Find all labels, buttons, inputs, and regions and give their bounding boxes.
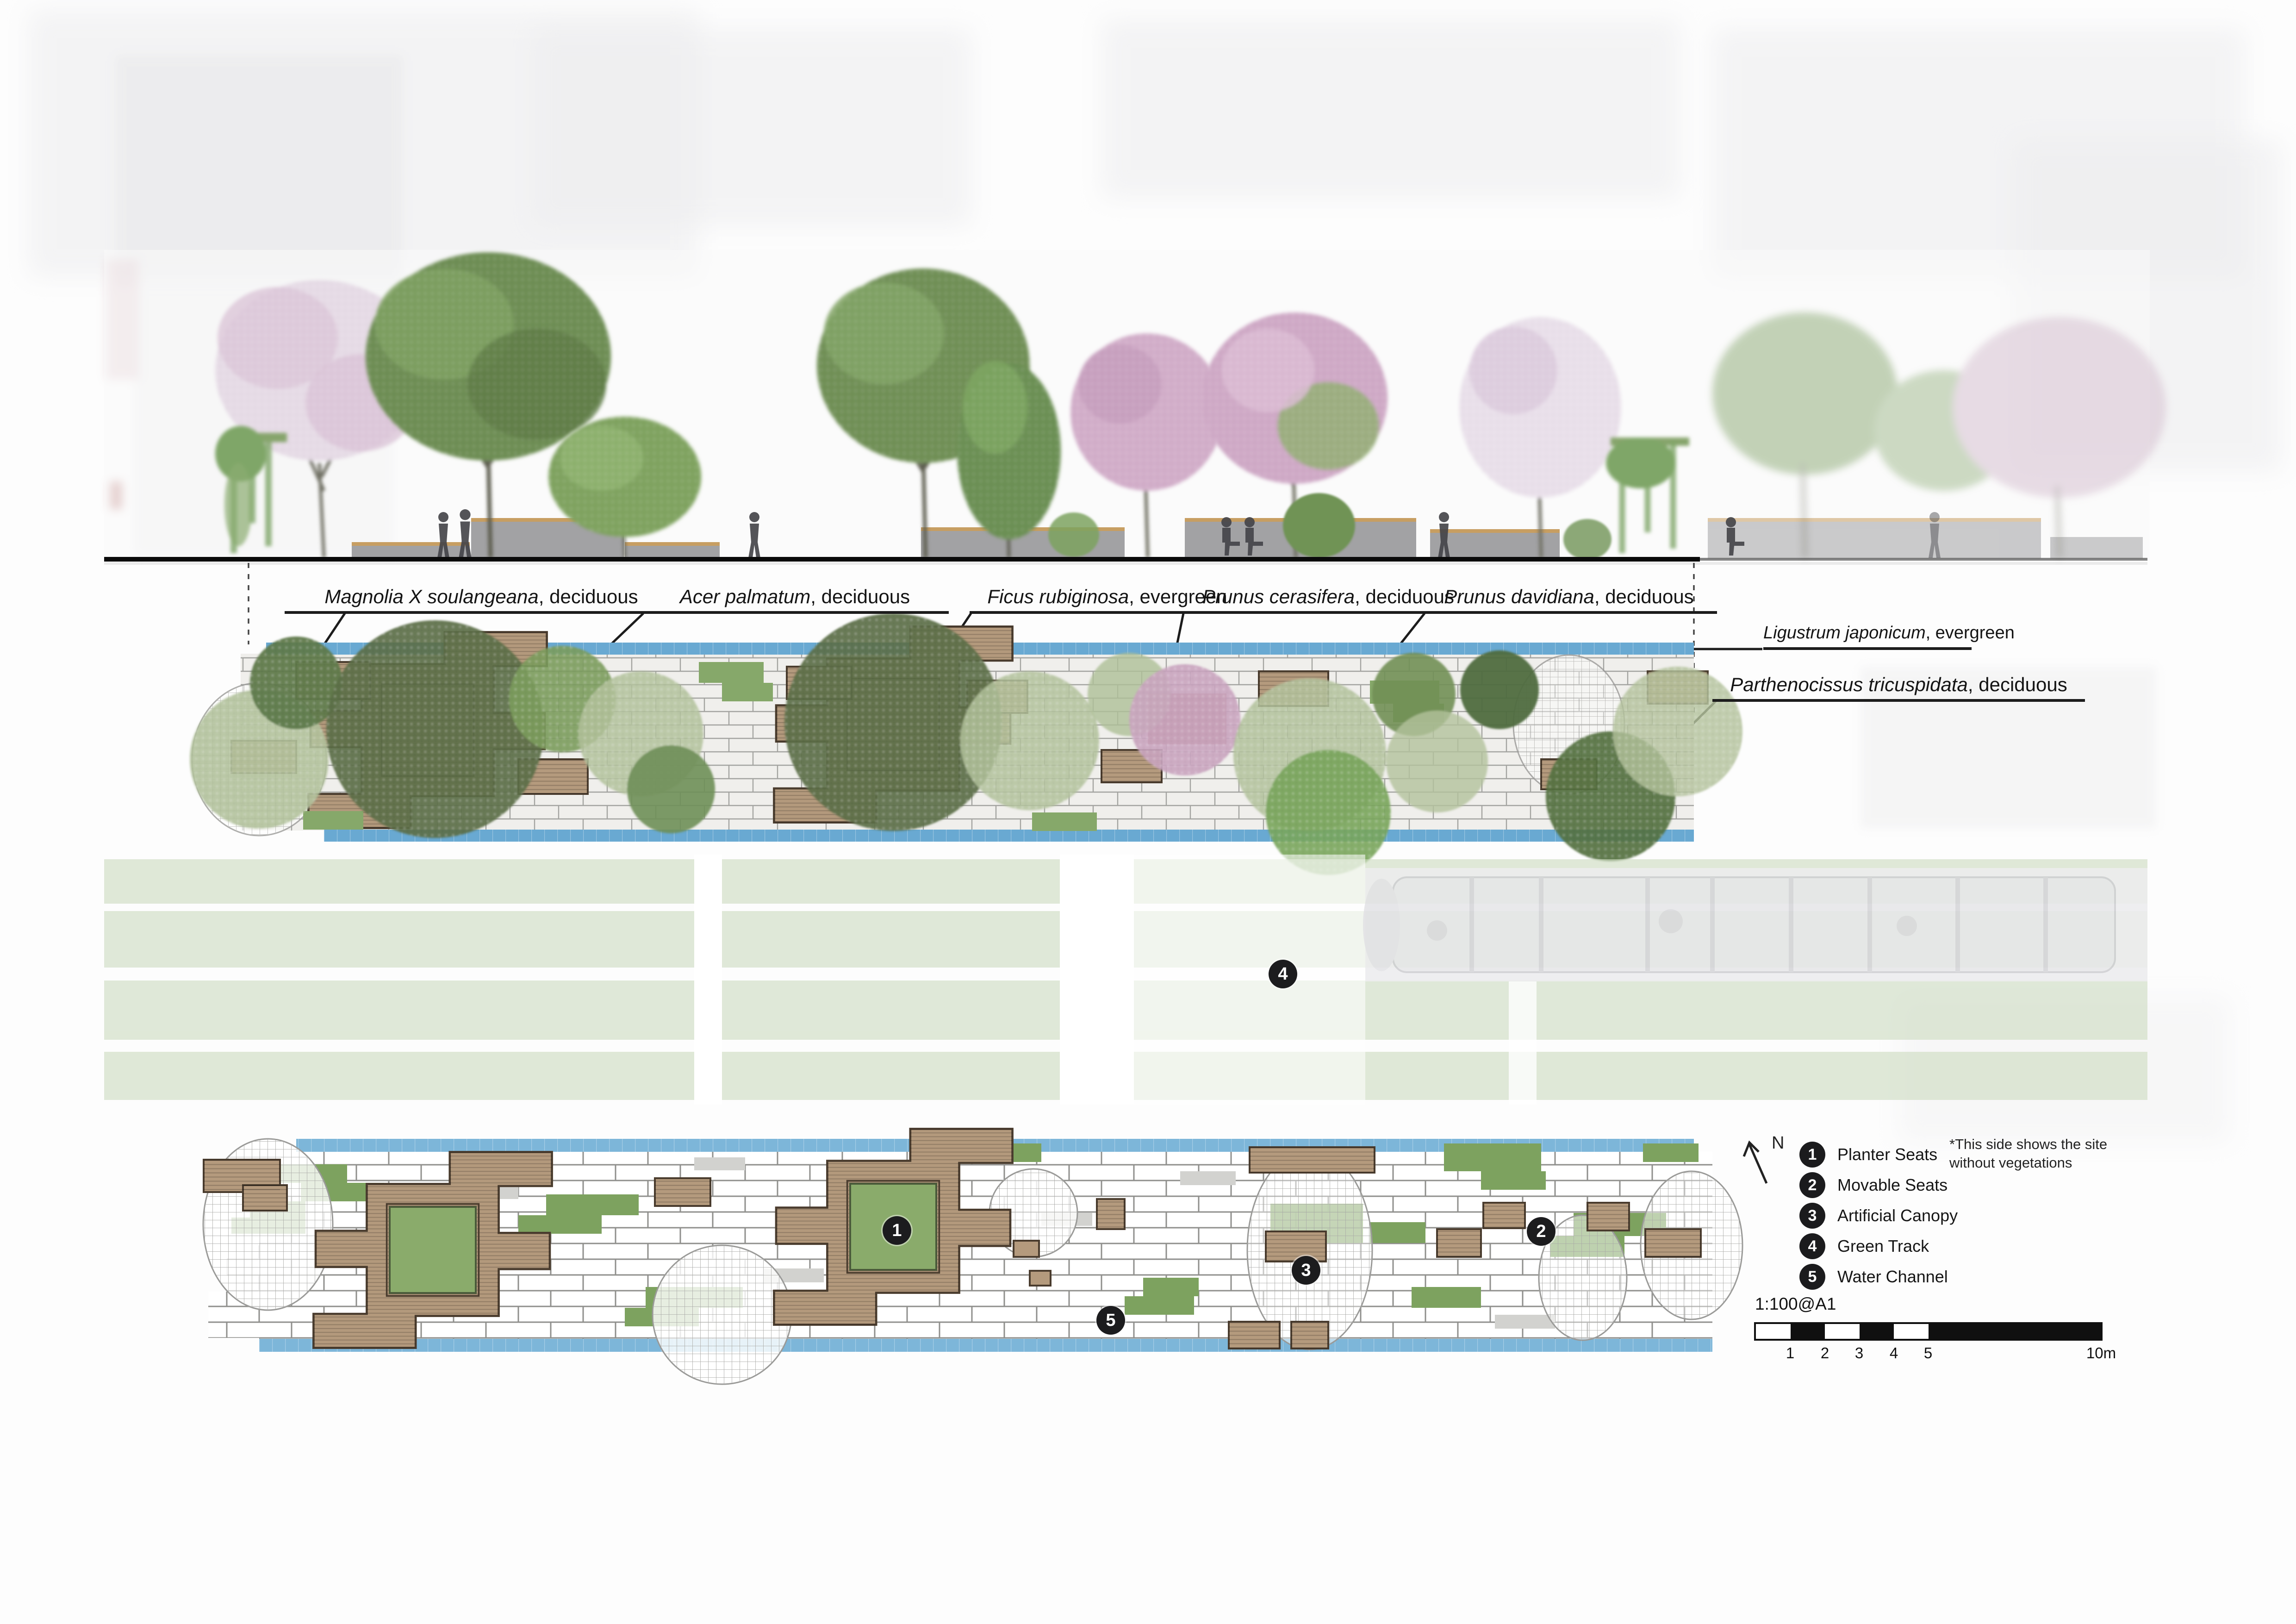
plant-label-ligustrum: Ligustrum japonicum, evergreen — [1763, 621, 1972, 650]
plan-marker-2: 2 — [1527, 1217, 1556, 1246]
scale-ratio-label: 1:100@A1 — [1755, 1294, 1836, 1314]
legend-item-movable-seats: 2 Movable Seats — [1799, 1172, 1948, 1198]
plant-species: Parthenocissus tricuspidata — [1730, 674, 1968, 695]
legend-label: Water Channel — [1837, 1267, 1948, 1287]
marker-number: 2 — [1536, 1222, 1546, 1242]
legend-item-planter-seats: 1 Planter Seats — [1799, 1142, 1937, 1168]
scale-tick-5: 5 — [1924, 1344, 1932, 1362]
legend-label: Planter Seats — [1837, 1145, 1937, 1164]
legend-label: Green Track — [1837, 1237, 1929, 1256]
plant-species: Ligustrum japonicum — [1763, 623, 1926, 643]
legend-number-4: 4 — [1799, 1233, 1825, 1259]
scale-tick-10m: 10m — [2086, 1344, 2116, 1362]
scale-bar — [1754, 1322, 2103, 1341]
plant-type: , deciduous — [810, 586, 910, 607]
scale-tick-2: 2 — [1821, 1344, 1829, 1362]
legend-label: Artificial Canopy — [1837, 1206, 1958, 1225]
plant-type: , deciduous — [539, 586, 638, 607]
note-line-2: without vegetations — [1949, 1154, 2107, 1172]
drawing-canvas — [0, 0, 2296, 1624]
aerial-barge-photo — [1363, 868, 2147, 981]
plant-label-parthenocissus: Parthenocissus tricuspidata, deciduous — [1712, 673, 2085, 702]
planting-plan — [190, 613, 1742, 875]
marker-number: 3 — [1301, 1261, 1311, 1280]
marker-number: 5 — [1106, 1311, 1115, 1330]
plan-marker-4: 4 — [1269, 960, 1297, 988]
green-track-band — [104, 855, 2147, 1105]
ground-shadow — [104, 562, 2147, 565]
scale-tick-1: 1 — [1786, 1344, 1794, 1362]
marker-number: 1 — [892, 1221, 902, 1241]
plant-label-acer: Acer palmatum, deciduous — [641, 585, 949, 614]
legend-number-2: 2 — [1799, 1172, 1825, 1198]
plan-marker-3: 3 — [1292, 1256, 1320, 1285]
presentation-board: Magnolia X soulangeana, deciduous Acer p… — [0, 0, 2296, 1624]
plant-species: Acer palmatum — [680, 586, 810, 607]
plant-type: , evergreen — [1926, 623, 2015, 643]
note-line-1: *This side shows the site — [1949, 1135, 2107, 1154]
legend-item-water-channel: 5 Water Channel — [1799, 1264, 1948, 1290]
plant-type: , deciduous — [1594, 586, 1694, 607]
elevation-ground-line-faint — [1700, 558, 2147, 561]
legend-number-5: 5 — [1799, 1264, 1825, 1290]
plant-label-prunus-davidiana: Prunus davidiana, deciduous — [1421, 585, 1717, 614]
elevation-ground-line — [104, 557, 1700, 562]
north-label: N — [1772, 1133, 1784, 1153]
plan-marker-1: 1 — [883, 1216, 911, 1245]
plant-species: Prunus cerasifera — [1202, 586, 1355, 607]
plant-type: , deciduous — [1968, 674, 2067, 695]
plant-label-magnolia: Magnolia X soulangeana, deciduous — [285, 585, 678, 614]
plant-species: Magnolia X soulangeana — [324, 586, 538, 607]
legend-label: Movable Seats — [1837, 1175, 1948, 1195]
scale-tick-3: 3 — [1855, 1344, 1863, 1362]
plant-species: Ficus rubiginosa — [987, 586, 1129, 607]
side-note: *This side shows the site without vegeta… — [1949, 1135, 2107, 1172]
north-arrow-icon — [1744, 1143, 1767, 1183]
legend-number-1: 1 — [1799, 1142, 1825, 1168]
section-elevation — [104, 250, 2166, 565]
scale-tick-4: 4 — [1890, 1344, 1898, 1362]
legend-item-artificial-canopy: 3 Artificial Canopy — [1799, 1203, 1958, 1229]
plant-species: Prunus davidiana — [1444, 586, 1594, 607]
legend-item-green-track: 4 Green Track — [1799, 1233, 1929, 1259]
legend-number-3: 3 — [1799, 1203, 1825, 1229]
plan-marker-5: 5 — [1096, 1306, 1125, 1335]
hardscape-plan — [203, 1129, 1742, 1384]
marker-number: 4 — [1278, 964, 1288, 984]
